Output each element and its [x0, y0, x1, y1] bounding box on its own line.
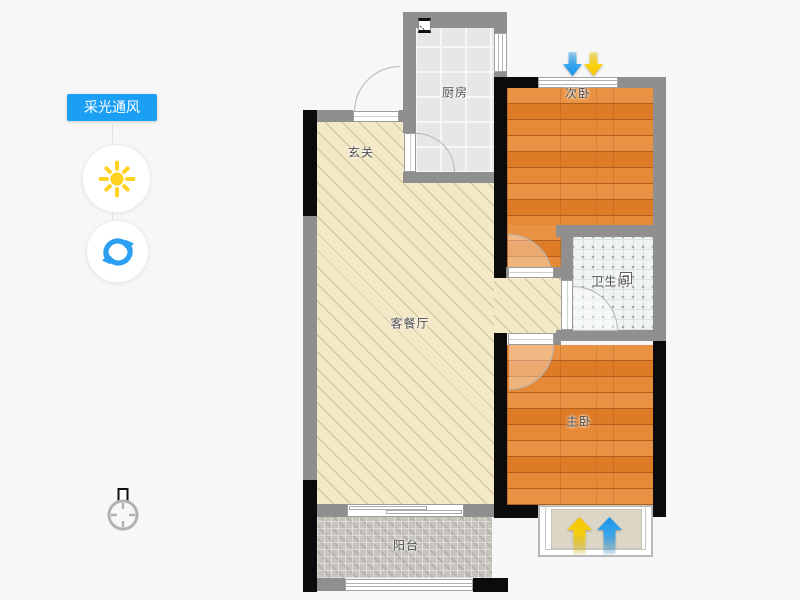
- sun-button[interactable]: [82, 144, 151, 213]
- bedroom1-door-stub-right: [554, 333, 561, 345]
- living-room-corridor-floor[interactable]: [494, 278, 561, 333]
- living-label: 客餐厅: [390, 315, 429, 332]
- right-wall-bearing: [653, 337, 666, 517]
- flue-icon: [418, 18, 431, 33]
- balcony-top-wall-right: [464, 504, 494, 517]
- bathroom-bottom-wall: [556, 330, 666, 341]
- center-wall-bearing-top: [494, 78, 507, 278]
- balcony-top-wall-left: [317, 504, 347, 517]
- center-wall-bearing-bottom: [494, 333, 507, 518]
- entrance-door-swing-arc: [354, 66, 400, 112]
- bedroom2-label: 次卧: [565, 85, 591, 102]
- compass-icon: [103, 486, 143, 534]
- bathroom-top-wall: [556, 225, 666, 237]
- left-wall: [303, 216, 317, 480]
- balcony-window: [345, 579, 473, 591]
- ventilation-arrow-blue-down-icon: [563, 52, 582, 76]
- balcony-bottom-wall-bearing: [473, 578, 508, 592]
- left-wall-bearing-bottom: [303, 480, 317, 592]
- kitchen-right-wall-upper: [494, 12, 507, 33]
- connector-line: [112, 121, 113, 145]
- bedroom2-floor[interactable]: [507, 88, 653, 225]
- bathroom-door: [561, 280, 573, 330]
- entry-wall-right: [399, 110, 416, 122]
- bathroom-label: 卫生间: [591, 273, 630, 290]
- bedroom1-door: [508, 333, 554, 345]
- bedroom2-door-stub-right: [554, 267, 561, 278]
- kitchen-door: [404, 133, 416, 172]
- bedroom1-label: 主卧: [566, 413, 592, 430]
- sun-icon: [91, 153, 143, 205]
- kitchen-bottom-wall: [403, 172, 507, 183]
- kitchen-label: 厨房: [442, 84, 468, 101]
- light-arrow-yellow-down-icon: [584, 52, 603, 76]
- lighting-ventilation-button[interactable]: 采光通风: [67, 94, 157, 121]
- left-wall-bearing-top: [303, 110, 317, 216]
- bathroom-left-wall-top: [561, 237, 573, 280]
- light-arrow-yellow-up-icon: [567, 517, 592, 554]
- refresh-button[interactable]: [86, 220, 149, 283]
- entrance-door: [353, 111, 399, 122]
- hallway-label: 玄关: [348, 144, 374, 161]
- bedroom2-top-wall-bearing: [494, 77, 538, 88]
- sliding-door-panel-right: [386, 510, 462, 514]
- balcony-bottom-wall-left: [317, 578, 345, 591]
- balcony-label: 阳台: [393, 537, 419, 554]
- bedroom1-bottom-wall-bearing: [494, 505, 538, 518]
- kitchen-window: [494, 33, 507, 72]
- right-wall: [653, 77, 666, 337]
- bedroom2-door: [508, 267, 554, 278]
- refresh-icon: [97, 231, 139, 273]
- ventilation-arrow-blue-up-icon: [597, 517, 622, 554]
